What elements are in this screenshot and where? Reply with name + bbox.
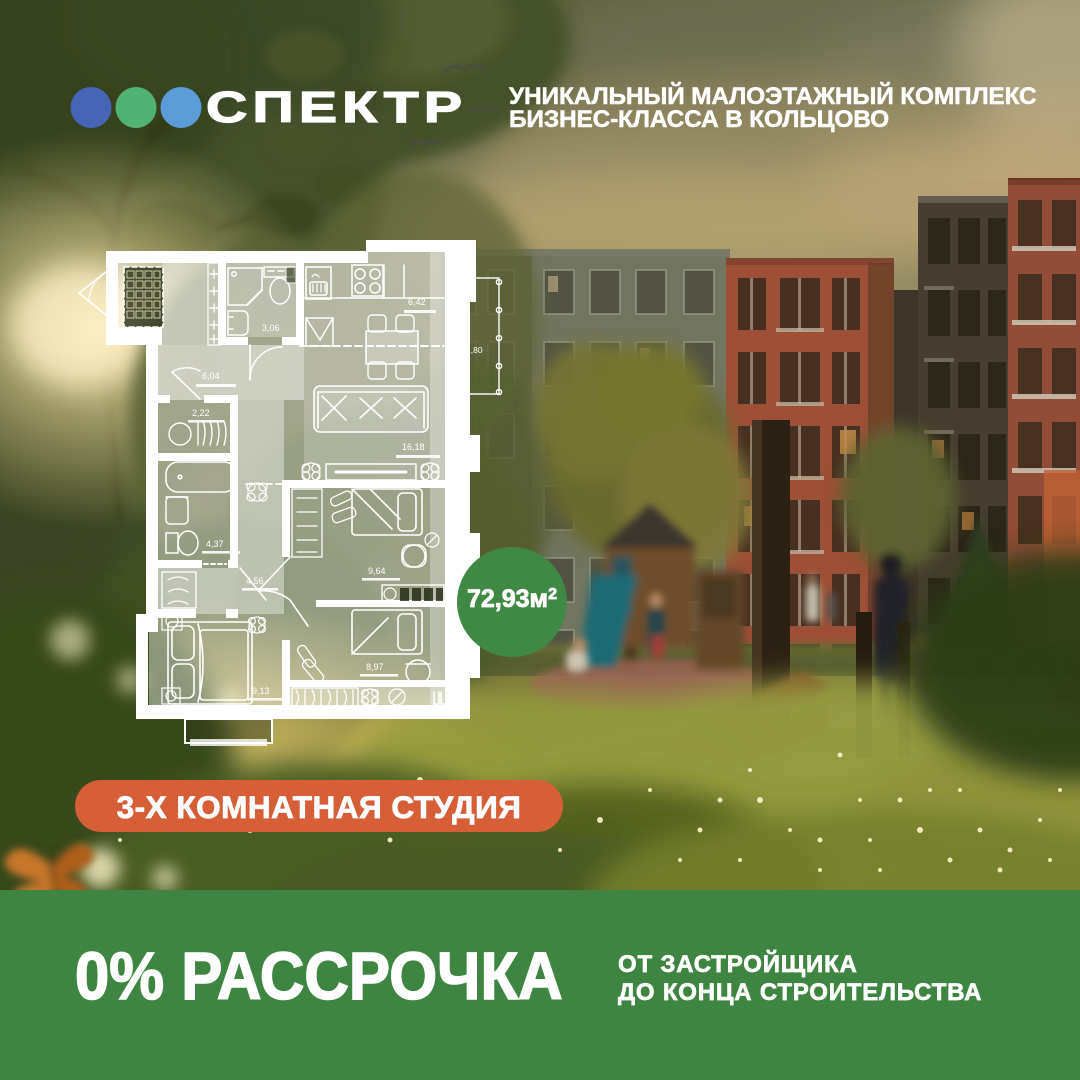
svg-text:9,13: 9,13 <box>252 686 270 696</box>
svg-text:6,42: 6,42 <box>408 297 426 307</box>
svg-text:2,22: 2,22 <box>192 408 210 418</box>
svg-text:4,56: 4,56 <box>246 576 264 586</box>
svg-text:8,97: 8,97 <box>366 662 384 672</box>
svg-text:6,04: 6,04 <box>202 371 220 381</box>
svg-text:3,06: 3,06 <box>262 323 280 333</box>
svg-text:4,37: 4,37 <box>206 539 224 549</box>
svg-text:16,18: 16,18 <box>402 442 425 452</box>
svg-text:9,64: 9,64 <box>368 566 386 576</box>
svg-text:1,80: 1,80 <box>466 345 483 355</box>
